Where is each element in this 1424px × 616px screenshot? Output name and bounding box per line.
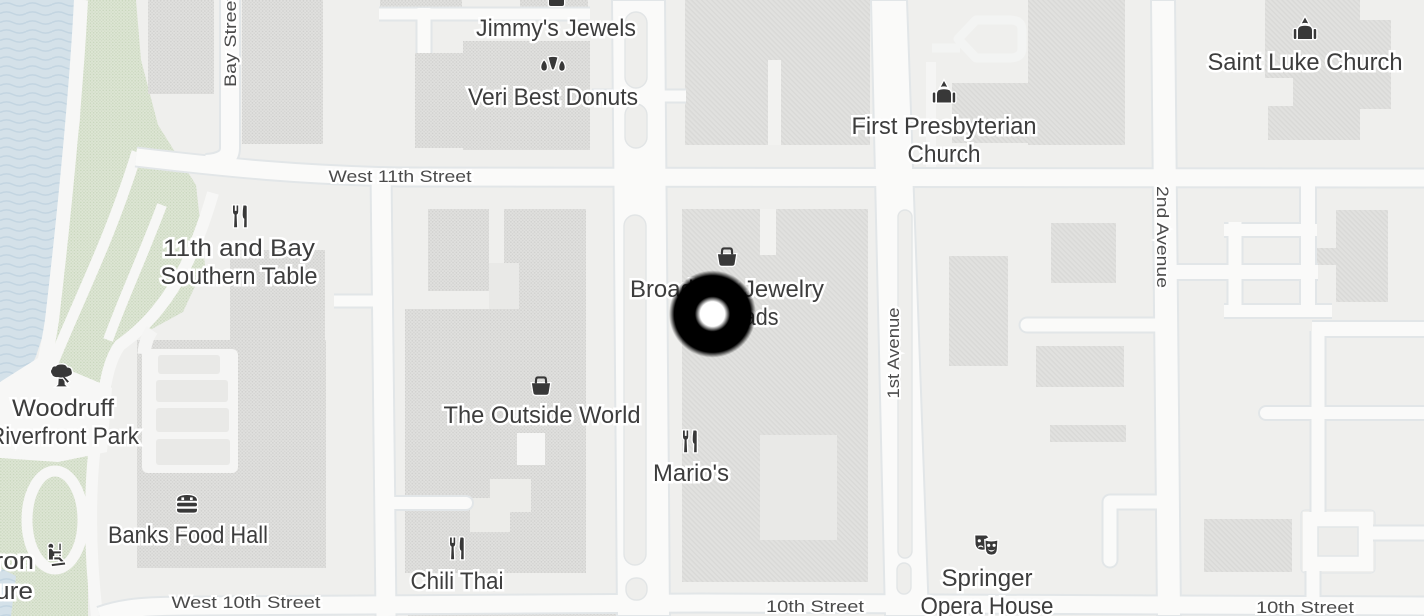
svg-text:10th Street: 10th Street <box>766 598 865 616</box>
svg-text:West 10th Street: West 10th Street <box>172 594 322 612</box>
svg-text:Veri Best Donuts: Veri Best Donuts <box>468 84 638 111</box>
svg-text:ron: ron <box>0 548 34 575</box>
svg-text:Bay Street: Bay Street <box>222 0 240 87</box>
svg-text:Woodruff: Woodruff <box>12 395 114 422</box>
svg-text:Springer: Springer <box>942 565 1033 592</box>
svg-text:10th Street: 10th Street <box>1256 599 1355 616</box>
svg-text:First Presbyterian: First Presbyterian <box>852 113 1037 140</box>
svg-text:Southern Table: Southern Table <box>161 263 318 290</box>
svg-text:Riverfront Park: Riverfront Park <box>0 423 140 450</box>
svg-text:Chili Thai: Chili Thai <box>411 568 504 595</box>
svg-text:Banks Food Hall: Banks Food Hall <box>108 522 268 549</box>
svg-text:Church: Church <box>908 141 981 168</box>
svg-text:West 11th Street: West 11th Street <box>329 168 473 186</box>
svg-text:11th and Bay: 11th and Bay <box>163 235 315 262</box>
svg-text:1st Avenue: 1st Avenue <box>885 308 903 399</box>
svg-text:Mario's: Mario's <box>653 460 729 487</box>
svg-text:2nd Avenue: 2nd Avenue <box>1153 186 1171 288</box>
svg-text:The Outside World: The Outside World <box>444 402 641 429</box>
svg-text:Saint Luke Church: Saint Luke Church <box>1208 49 1403 76</box>
svg-text:Opera House: Opera House <box>921 593 1054 616</box>
svg-text:ure: ure <box>0 578 33 605</box>
svg-text:Jimmy's Jewels: Jimmy's Jewels <box>476 15 636 42</box>
